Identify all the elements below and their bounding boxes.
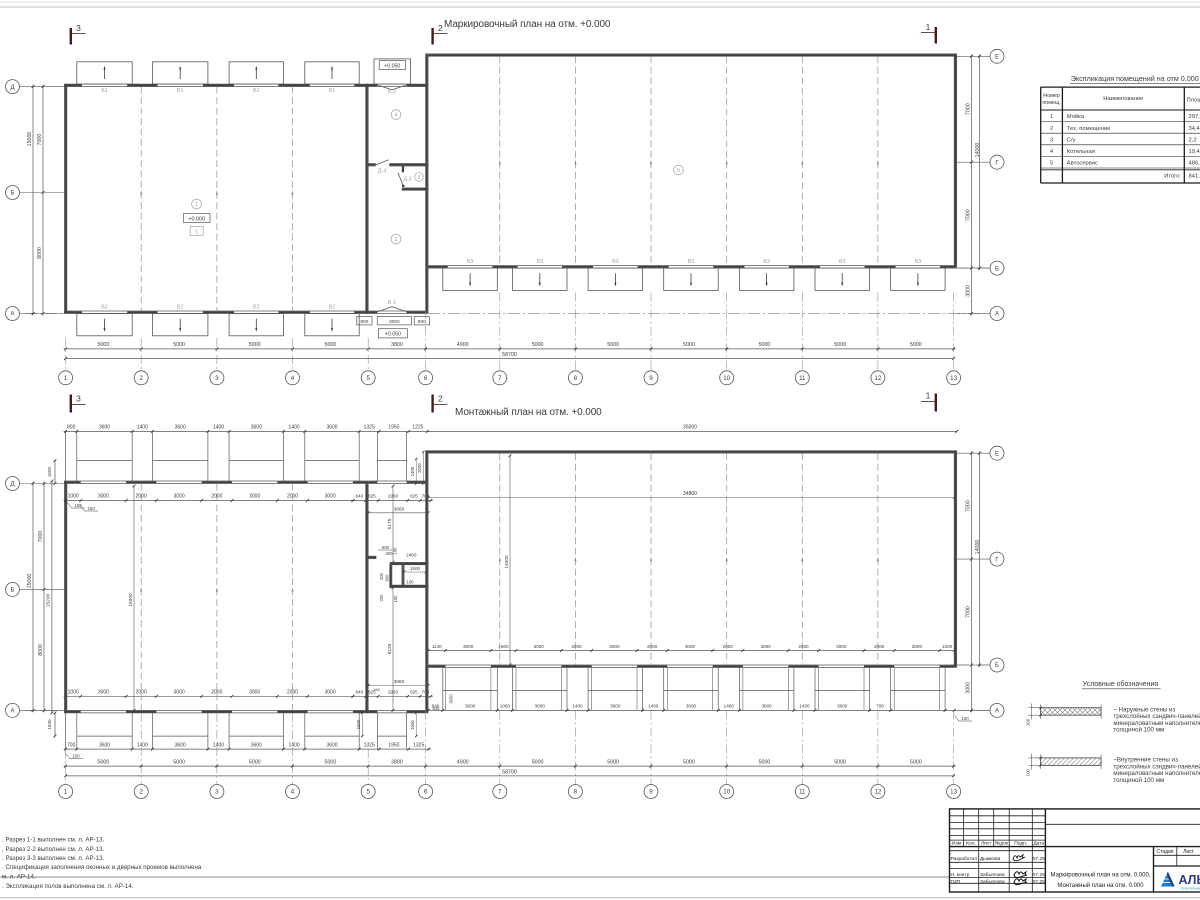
- svg-text:6: 6: [424, 789, 428, 796]
- svg-text:3000: 3000: [174, 494, 185, 500]
- svg-text:10: 10: [723, 375, 730, 382]
- svg-text:841,1: 841,1: [1189, 174, 1200, 180]
- svg-text:1325: 1325: [413, 742, 424, 748]
- svg-text:7000: 7000: [965, 103, 971, 115]
- svg-text:помещ.: помещ.: [1042, 100, 1061, 106]
- svg-text:5000: 5000: [249, 342, 261, 348]
- svg-text:Забьялова: Забьялова: [980, 879, 1005, 885]
- svg-text:3600: 3600: [465, 704, 476, 709]
- svg-text:160: 160: [373, 687, 380, 692]
- svg-text:Номер: Номер: [1043, 93, 1060, 99]
- svg-text:7000: 7000: [37, 134, 43, 146]
- svg-text:Д-3: Д-3: [403, 177, 411, 183]
- svg-text:3860: 3860: [394, 506, 405, 512]
- svg-text:2: 2: [139, 789, 143, 796]
- svg-text:В1: В1: [101, 88, 108, 94]
- svg-text:5000: 5000: [607, 342, 619, 348]
- svg-text:07.25: 07.25: [1033, 879, 1046, 885]
- svg-text:3000: 3000: [98, 494, 109, 500]
- svg-text:3000: 3000: [685, 644, 696, 649]
- svg-text:3600: 3600: [326, 742, 337, 748]
- svg-text:4900: 4900: [457, 342, 469, 348]
- svg-text:3: 3: [76, 23, 81, 33]
- svg-text:400: 400: [379, 572, 384, 580]
- svg-text:2000: 2000: [874, 644, 885, 649]
- svg-text:1400: 1400: [648, 704, 659, 709]
- svg-text:1500: 1500: [356, 719, 361, 729]
- svg-text:100: 100: [74, 503, 82, 508]
- svg-text:1400: 1400: [137, 425, 148, 431]
- svg-text:2,2: 2,2: [1189, 137, 1197, 143]
- svg-text:1400: 1400: [213, 425, 224, 431]
- svg-text:34800: 34800: [683, 491, 697, 497]
- svg-text:1140: 1140: [432, 644, 442, 649]
- svg-text:4: 4: [1050, 149, 1053, 155]
- svg-text:825: 825: [410, 690, 418, 695]
- svg-text:5000: 5000: [759, 342, 771, 348]
- svg-text:В3: В3: [467, 259, 474, 265]
- svg-text:35000: 35000: [683, 425, 697, 431]
- svg-text:1000: 1000: [68, 690, 79, 696]
- svg-text:840: 840: [355, 690, 363, 695]
- svg-text:14000: 14000: [975, 143, 981, 158]
- svg-text:1: 1: [195, 202, 198, 208]
- svg-text:1400: 1400: [137, 742, 148, 748]
- svg-text:4: 4: [394, 113, 397, 119]
- svg-text:07.25: 07.25: [1033, 872, 1046, 878]
- svg-text:3000: 3000: [965, 682, 971, 694]
- svg-text:3800: 3800: [391, 759, 403, 765]
- svg-text:3600: 3600: [837, 704, 848, 709]
- svg-text:2000: 2000: [647, 644, 658, 649]
- svg-text:В1: В1: [253, 88, 260, 94]
- svg-text:3600: 3600: [175, 425, 186, 431]
- svg-text:1325: 1325: [364, 425, 375, 431]
- svg-text:Н. контр: Н. контр: [951, 872, 970, 878]
- svg-text:Наименование: Наименование: [1103, 96, 1143, 102]
- svg-text:Маркировочный план на отм. 0.0: Маркировочный план на отм. 0.000,: [1051, 871, 1151, 878]
- svg-text:Дата: Дата: [1033, 841, 1044, 847]
- svg-text:7000: 7000: [965, 606, 971, 618]
- svg-text:Кол.: Кол.: [966, 841, 976, 847]
- svg-text:34,4: 34,4: [1189, 126, 1200, 132]
- svg-text:3000: 3000: [760, 644, 771, 649]
- svg-text:2000: 2000: [417, 463, 422, 473]
- svg-text:5000: 5000: [173, 759, 185, 765]
- svg-text:58700: 58700: [502, 770, 517, 776]
- svg-text:5175: 5175: [387, 518, 393, 529]
- svg-text:7: 7: [498, 789, 502, 796]
- svg-text:160: 160: [87, 506, 95, 511]
- svg-text:толщиной 100 мм: толщиной 100 мм: [1113, 777, 1164, 784]
- svg-text:5: 5: [677, 168, 680, 174]
- svg-text:825: 825: [368, 494, 376, 499]
- svg-text:7000: 7000: [38, 531, 44, 543]
- svg-text:1950: 1950: [388, 425, 399, 431]
- svg-text:А: А: [995, 709, 999, 715]
- svg-text:840: 840: [355, 494, 363, 499]
- svg-text:11: 11: [799, 789, 806, 796]
- svg-text:6: 6: [424, 375, 428, 382]
- svg-text:100: 100: [72, 754, 80, 759]
- svg-text:Итого:: Итого:: [1164, 174, 1181, 180]
- svg-text:3000: 3000: [249, 494, 260, 500]
- svg-text:5000: 5000: [325, 342, 337, 348]
- svg-text:13: 13: [950, 375, 957, 382]
- svg-text:Условные обозначения: Условные обозначения: [1083, 680, 1159, 688]
- svg-text:1060: 1060: [500, 704, 511, 709]
- svg-text:825: 825: [410, 494, 418, 499]
- svg-text:Дымкова: Дымкова: [980, 856, 1001, 862]
- svg-text:500: 500: [382, 545, 390, 550]
- svg-text:Лист: Лист: [981, 841, 992, 847]
- svg-text:12: 12: [874, 789, 881, 796]
- svg-text:3000: 3000: [389, 319, 400, 325]
- svg-text:+0.050: +0.050: [384, 63, 400, 69]
- svg-text:1600: 1600: [410, 720, 415, 730]
- svg-text:Маркировочный план на отм. +0.: Маркировочный план на отм. +0.000: [444, 19, 611, 30]
- svg-text:1400: 1400: [724, 704, 735, 709]
- svg-text:5000: 5000: [834, 759, 846, 765]
- svg-text:8: 8: [574, 789, 578, 796]
- svg-text:9: 9: [649, 375, 653, 382]
- svg-text:А: А: [10, 312, 14, 318]
- svg-text:3000: 3000: [249, 690, 260, 696]
- svg-text:Д: Д: [10, 85, 14, 91]
- svg-text:3600: 3600: [761, 704, 772, 709]
- svg-text:07.25: 07.25: [1033, 856, 1046, 862]
- svg-text:100: 100: [407, 579, 415, 584]
- svg-text:№док: №док: [995, 841, 1009, 847]
- svg-text:15000: 15000: [128, 593, 134, 607]
- svg-text:+0.050: +0.050: [385, 332, 401, 338]
- svg-text:11: 11: [799, 375, 806, 382]
- svg-text:3: 3: [76, 394, 81, 404]
- svg-text:100: 100: [1026, 768, 1031, 776]
- svg-text:3000: 3000: [965, 285, 971, 297]
- svg-text:В-1: В-1: [388, 300, 396, 306]
- svg-text:1400: 1400: [289, 425, 300, 431]
- svg-text:1400: 1400: [799, 704, 810, 709]
- svg-text:100: 100: [961, 716, 969, 721]
- svg-text:Тех. помещение: Тех. помещение: [1067, 126, 1111, 132]
- svg-text:С/у: С/у: [1067, 137, 1076, 143]
- svg-text:4900: 4900: [457, 759, 469, 765]
- svg-text:2: 2: [394, 237, 397, 243]
- svg-text:В3: В3: [688, 259, 695, 265]
- svg-text:1400: 1400: [213, 742, 224, 748]
- svg-text:А: А: [995, 312, 999, 318]
- svg-text:Е: Е: [995, 451, 999, 457]
- svg-text:В1: В1: [177, 88, 184, 94]
- svg-text:1325: 1325: [364, 742, 375, 748]
- svg-text:. Разрез 1-1 выполнен см. л. А: . Разрез 1-1 выполнен см. л. АР-13.: [2, 837, 105, 844]
- svg-text:5: 5: [1050, 161, 1053, 167]
- svg-text:Стадия: Стадия: [1156, 849, 1173, 855]
- svg-text:5000: 5000: [607, 759, 619, 765]
- svg-text:2000: 2000: [571, 644, 582, 649]
- svg-text:В3: В3: [537, 259, 544, 265]
- svg-text:. Разрез 2-2 выполнен см. л. А: . Разрез 2-2 выполнен см. л. АР-13.: [2, 846, 105, 853]
- svg-text:В3: В3: [612, 259, 619, 265]
- svg-text:Экспликация помещений на отм 0: Экспликация помещений на отм 0.000: [1071, 74, 1199, 83]
- svg-text:3: 3: [215, 375, 219, 382]
- svg-text:. Экспликация полов выполнена: . Экспликация полов выполнена см. л. АР-…: [2, 883, 134, 890]
- svg-text:1: 1: [195, 229, 198, 235]
- svg-text:2460: 2460: [406, 553, 417, 558]
- svg-text:3000: 3000: [463, 644, 474, 649]
- svg-text:3800: 3800: [391, 342, 403, 348]
- svg-text:м. л. АР-14.: м. л. АР-14.: [2, 874, 36, 881]
- svg-text:В2: В2: [329, 304, 336, 310]
- svg-text:5000: 5000: [249, 759, 261, 765]
- svg-text:5: 5: [366, 789, 370, 796]
- svg-text:3600: 3600: [251, 425, 262, 431]
- svg-text:строительная компания: строительная компания: [1180, 887, 1200, 891]
- svg-text:5000: 5000: [834, 342, 846, 348]
- svg-text:Площадь,: Площадь,: [1187, 98, 1200, 104]
- svg-text:15000: 15000: [27, 132, 33, 147]
- svg-text:5000: 5000: [98, 342, 110, 348]
- svg-text:5000: 5000: [173, 342, 185, 348]
- svg-text:4: 4: [291, 789, 295, 796]
- svg-text:1225: 1225: [412, 425, 423, 431]
- svg-text:3000: 3000: [449, 694, 454, 704]
- svg-text:8: 8: [574, 375, 578, 382]
- svg-text:Д: Д: [10, 482, 14, 488]
- svg-text:700: 700: [876, 704, 884, 709]
- svg-text:3600: 3600: [175, 742, 186, 748]
- svg-text:3000: 3000: [325, 690, 336, 696]
- svg-text:2: 2: [438, 394, 443, 404]
- svg-text:12: 12: [874, 375, 881, 382]
- svg-text:. Спецификация заполнения окон: . Спецификация заполнения оконных и двер…: [2, 864, 202, 871]
- svg-text:3860: 3860: [394, 679, 405, 685]
- svg-text:800: 800: [360, 319, 368, 325]
- svg-text:толщиной 100 мм: толщиной 100 мм: [1113, 727, 1164, 734]
- svg-text:1: 1: [64, 789, 68, 796]
- svg-text:8000: 8000: [37, 247, 43, 259]
- svg-text:В2: В2: [253, 304, 260, 310]
- svg-text:9: 9: [649, 789, 653, 796]
- svg-text:Изм: Изм: [952, 841, 962, 847]
- svg-text:15000: 15000: [27, 574, 33, 589]
- svg-text:+0.000: +0.000: [188, 216, 205, 222]
- svg-text:486,8: 486,8: [1189, 161, 1200, 167]
- svg-text:В-2: В-2: [388, 89, 396, 95]
- svg-text:900: 900: [384, 574, 389, 582]
- svg-text:Д-4: Д-4: [378, 169, 386, 175]
- svg-text:200: 200: [379, 594, 384, 602]
- svg-text:1400: 1400: [572, 704, 583, 709]
- svg-text:Б: Б: [11, 588, 15, 594]
- svg-text:Б: Б: [995, 663, 999, 669]
- svg-text:7000: 7000: [965, 500, 971, 512]
- svg-text:1500: 1500: [47, 466, 52, 477]
- svg-text:1: 1: [926, 391, 931, 401]
- svg-text:Б: Б: [995, 266, 999, 272]
- svg-text:3600: 3600: [686, 704, 697, 709]
- svg-text:Автосервис: Автосервис: [1067, 161, 1098, 167]
- svg-text:10: 10: [723, 789, 730, 796]
- svg-text:В3: В3: [839, 259, 846, 265]
- svg-text:3600: 3600: [326, 425, 337, 431]
- svg-text:2: 2: [438, 23, 443, 33]
- svg-text:Мойка: Мойка: [1067, 113, 1085, 120]
- svg-text:15200: 15200: [46, 594, 52, 608]
- svg-text:8000: 8000: [38, 644, 44, 656]
- svg-text:1400: 1400: [289, 742, 300, 748]
- svg-text:14000: 14000: [504, 555, 510, 569]
- svg-text:14000: 14000: [975, 540, 981, 555]
- svg-text:5: 5: [366, 375, 370, 382]
- svg-text:Разработал: Разработал: [951, 856, 978, 862]
- svg-text:1400: 1400: [410, 466, 415, 476]
- svg-text:2000: 2000: [798, 644, 809, 649]
- svg-text:13: 13: [950, 789, 957, 796]
- svg-text:8125: 8125: [387, 643, 393, 654]
- svg-text:5000: 5000: [683, 342, 695, 348]
- svg-text:Котельная: Котельная: [1067, 149, 1095, 155]
- svg-text:3600: 3600: [251, 742, 262, 748]
- svg-text:100: 100: [1026, 718, 1031, 726]
- svg-text:5000: 5000: [910, 342, 922, 348]
- svg-text:1: 1: [926, 22, 931, 32]
- svg-text:2: 2: [1050, 126, 1053, 132]
- svg-text:800: 800: [67, 425, 76, 431]
- svg-text:4: 4: [291, 375, 295, 382]
- svg-text:840: 840: [433, 706, 441, 711]
- svg-text:5000: 5000: [683, 759, 695, 765]
- svg-text:3000: 3000: [174, 690, 185, 696]
- svg-text:3600: 3600: [610, 704, 621, 709]
- svg-text:Б: Б: [11, 191, 15, 197]
- svg-text:3: 3: [215, 789, 219, 796]
- svg-text:5000: 5000: [910, 759, 922, 765]
- svg-text:В3: В3: [763, 259, 770, 265]
- svg-text:5000: 5000: [98, 759, 110, 765]
- svg-text:3000: 3000: [836, 644, 847, 649]
- svg-text:3000: 3000: [912, 644, 923, 649]
- svg-text:700: 700: [67, 742, 76, 748]
- svg-text:7000: 7000: [965, 209, 971, 221]
- svg-text:7: 7: [498, 375, 502, 382]
- svg-text:100: 100: [393, 547, 398, 555]
- svg-text:1500: 1500: [410, 566, 421, 571]
- svg-text:Монтажный план на отм. +0.000: Монтажный план на отм. +0.000: [455, 407, 602, 418]
- svg-text:5000: 5000: [532, 759, 544, 765]
- svg-text:Монтажный план на отм. 0.000: Монтажный план на отм. 0.000: [1057, 882, 1144, 889]
- svg-text:3: 3: [1050, 137, 1053, 143]
- svg-text:2000: 2000: [723, 644, 734, 649]
- svg-text:ГИП: ГИП: [951, 879, 961, 885]
- svg-text:АЛЬЯНС: АЛЬЯНС: [1179, 873, 1200, 887]
- svg-text:800: 800: [418, 319, 426, 325]
- svg-text:В1: В1: [329, 88, 336, 94]
- svg-text:3: 3: [417, 175, 420, 181]
- svg-text:Подп.: Подп.: [1014, 841, 1027, 847]
- svg-text:3600: 3600: [535, 704, 546, 709]
- svg-text:297,9: 297,9: [1189, 114, 1200, 120]
- svg-text:3600: 3600: [99, 425, 110, 431]
- svg-text:1: 1: [1050, 114, 1053, 120]
- svg-text:5000: 5000: [532, 342, 544, 348]
- svg-text:1: 1: [64, 375, 68, 382]
- svg-text:58700: 58700: [502, 352, 517, 358]
- svg-text:В2: В2: [101, 304, 108, 310]
- svg-text:1950: 1950: [388, 742, 399, 748]
- svg-text:Забьялова: Забьялова: [980, 872, 1005, 878]
- svg-text:3000: 3000: [325, 494, 336, 500]
- svg-text:. Разрез 3-3 выполнен см. л. А: . Разрез 3-3 выполнен см. л. АР-13.: [2, 855, 105, 862]
- svg-text:3600: 3600: [99, 742, 110, 748]
- svg-text:1500: 1500: [47, 719, 52, 730]
- svg-text:В2: В2: [177, 304, 184, 310]
- svg-text:5000: 5000: [325, 759, 337, 765]
- svg-text:1000: 1000: [942, 644, 953, 649]
- svg-text:А: А: [10, 709, 14, 715]
- svg-text:5000: 5000: [759, 759, 771, 765]
- svg-text:3000: 3000: [98, 690, 109, 696]
- svg-text:Е: Е: [995, 55, 999, 61]
- svg-text:1000: 1000: [68, 494, 79, 500]
- svg-text:В3: В3: [915, 259, 922, 265]
- svg-text:Лист: Лист: [1183, 849, 1195, 855]
- svg-text:3000: 3000: [609, 644, 620, 649]
- svg-text:19,4: 19,4: [1189, 149, 1200, 155]
- svg-text:100: 100: [393, 595, 398, 603]
- svg-text:2: 2: [139, 375, 143, 382]
- svg-text:3000: 3000: [534, 644, 545, 649]
